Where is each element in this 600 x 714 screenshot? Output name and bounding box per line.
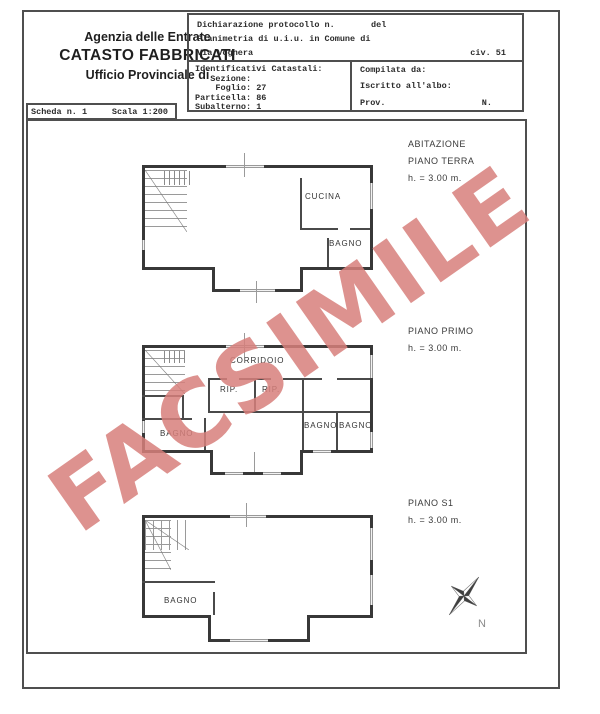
window-opening [226, 165, 264, 168]
wall [370, 345, 373, 355]
compass-star-icon: N [432, 570, 496, 634]
wall [208, 378, 227, 380]
label-piano-terra-line: PIANO TERRA [408, 153, 474, 170]
wall [350, 228, 370, 230]
wall [283, 378, 302, 380]
n-label: N. [482, 98, 492, 108]
staircase [145, 520, 171, 570]
room-label-bagno-right: BAGNO [339, 421, 372, 430]
cadastral-ids: Identificativi Catastali: Sezione: Fogli… [189, 62, 352, 110]
label-piano-primo-line: PIANO PRIMO [408, 323, 474, 340]
wall [142, 418, 192, 420]
label-piano-s1-line: PIANO S1 [408, 495, 462, 512]
window-opening [263, 472, 281, 475]
wall [243, 472, 263, 475]
staircase [164, 351, 186, 363]
wall [370, 209, 373, 270]
section-line [254, 452, 255, 472]
wall [142, 395, 182, 397]
window-opening [230, 639, 268, 642]
compiler-section: Compilata da: Iscritto all'albo: Prov. N… [352, 62, 522, 110]
protocol-del: del [371, 20, 386, 30]
wall [142, 165, 226, 168]
wall [370, 165, 373, 183]
label-piano-s1: PIANO S1 h. = 3.00 m. [408, 495, 462, 529]
window-opening [370, 432, 373, 448]
floorplan-piano-s1: BAGNO [142, 515, 373, 648]
wall [300, 228, 338, 230]
section-line [244, 153, 245, 177]
wall [204, 418, 206, 450]
wall [210, 472, 225, 475]
room-label-bagno-left: BAGNO [160, 429, 193, 438]
compilata-label: Compilata da: [360, 65, 426, 75]
room-label-bagno: BAGNO [329, 239, 362, 248]
section-line [246, 503, 247, 527]
cadastral-subalterno: Subalterno: 1 [195, 103, 350, 113]
iscritto-label: Iscritto all'albo: [360, 81, 452, 91]
wall [208, 411, 302, 413]
declaration-top: Dichiarazione protocollo n. del Planimet… [189, 15, 522, 62]
wall [264, 345, 373, 348]
label-piano-terra: ABITAZIONE PIANO TERRA h. = 3.00 m. [408, 136, 474, 187]
sheet-scale: Scala 1:200 [112, 107, 168, 117]
wall [142, 615, 211, 618]
north-label: N [478, 618, 486, 630]
sheet-box: Scheda n. 1 Scala 1:200 [26, 103, 177, 120]
wall [142, 267, 215, 270]
label-height-1: h. = 3.00 m. [408, 170, 474, 187]
wall [208, 639, 230, 642]
protocol-label: Dichiarazione protocollo n. [197, 20, 335, 30]
wall [303, 450, 313, 453]
street-label: Via Voghera [197, 48, 253, 58]
wall [300, 178, 302, 230]
window-opening [142, 421, 145, 433]
wall [337, 378, 370, 380]
wall [336, 411, 338, 450]
cadastral-sheet: Agenzia delle Entrate CATASTO FABBRICATI… [0, 0, 600, 714]
civic-number: civ. 51 [470, 48, 506, 58]
room-label-bagno: BAGNO [164, 596, 197, 605]
room-label-rip1: RIP. [220, 385, 238, 394]
declaration-box: Dichiarazione protocollo n. del Planimet… [187, 13, 524, 112]
floorplan-piano-primo: CORRIDOIO RIP. RIP. BAGNO BAGNO BAGNO [142, 345, 373, 478]
sheet-number: Scheda n. 1 [31, 107, 87, 117]
wall [370, 560, 373, 575]
window-opening [370, 575, 373, 605]
section-line [244, 333, 245, 357]
wall [268, 639, 310, 642]
compass-rose: N [432, 570, 496, 639]
label-height-2: h. = 3.00 m. [408, 340, 474, 357]
wall [213, 592, 215, 615]
section-line [256, 281, 257, 303]
wall [142, 581, 215, 583]
wall [182, 395, 184, 418]
window-opening [370, 183, 373, 209]
wall [300, 267, 373, 270]
room-label-cucina: CUCINA [305, 192, 341, 201]
wall [208, 615, 211, 642]
window-opening [230, 515, 266, 518]
room-label-bagno-mid: BAGNO [304, 421, 337, 430]
window-opening [142, 240, 145, 250]
prov-label: Prov. [360, 98, 386, 108]
wall [142, 515, 230, 518]
wall [212, 289, 240, 292]
wall [254, 378, 256, 411]
room-label-rip2: RIP. [262, 385, 280, 394]
room-label-corridoio: CORRIDOIO [230, 356, 284, 365]
wall [142, 450, 213, 453]
label-height-3: h. = 3.00 m. [408, 512, 462, 529]
wall [266, 515, 373, 518]
staircase [164, 171, 190, 185]
label-piano-primo: PIANO PRIMO h. = 3.00 m. [408, 323, 474, 357]
wall [302, 378, 304, 450]
window-opening [226, 345, 264, 348]
declaration-bottom: Identificativi Catastali: Sezione: Fogli… [189, 62, 522, 110]
label-abitazione: ABITAZIONE [408, 136, 474, 153]
wall [142, 345, 226, 348]
window-opening [313, 450, 331, 453]
floorplan-piano-terra: CUCINA BAGNO [142, 165, 373, 295]
window-opening [225, 472, 243, 475]
wall [370, 515, 373, 528]
wall [281, 472, 303, 475]
wall [275, 289, 303, 292]
wall [307, 615, 310, 642]
wall [331, 450, 373, 453]
planimetria-label: Planimetria di u.i.u. in Comune di [197, 34, 370, 44]
wall [302, 378, 322, 380]
window-opening [370, 528, 373, 560]
wall [307, 615, 373, 618]
wall [264, 165, 373, 168]
window-opening [370, 355, 373, 378]
window-opening [240, 289, 275, 292]
wall [208, 378, 210, 411]
